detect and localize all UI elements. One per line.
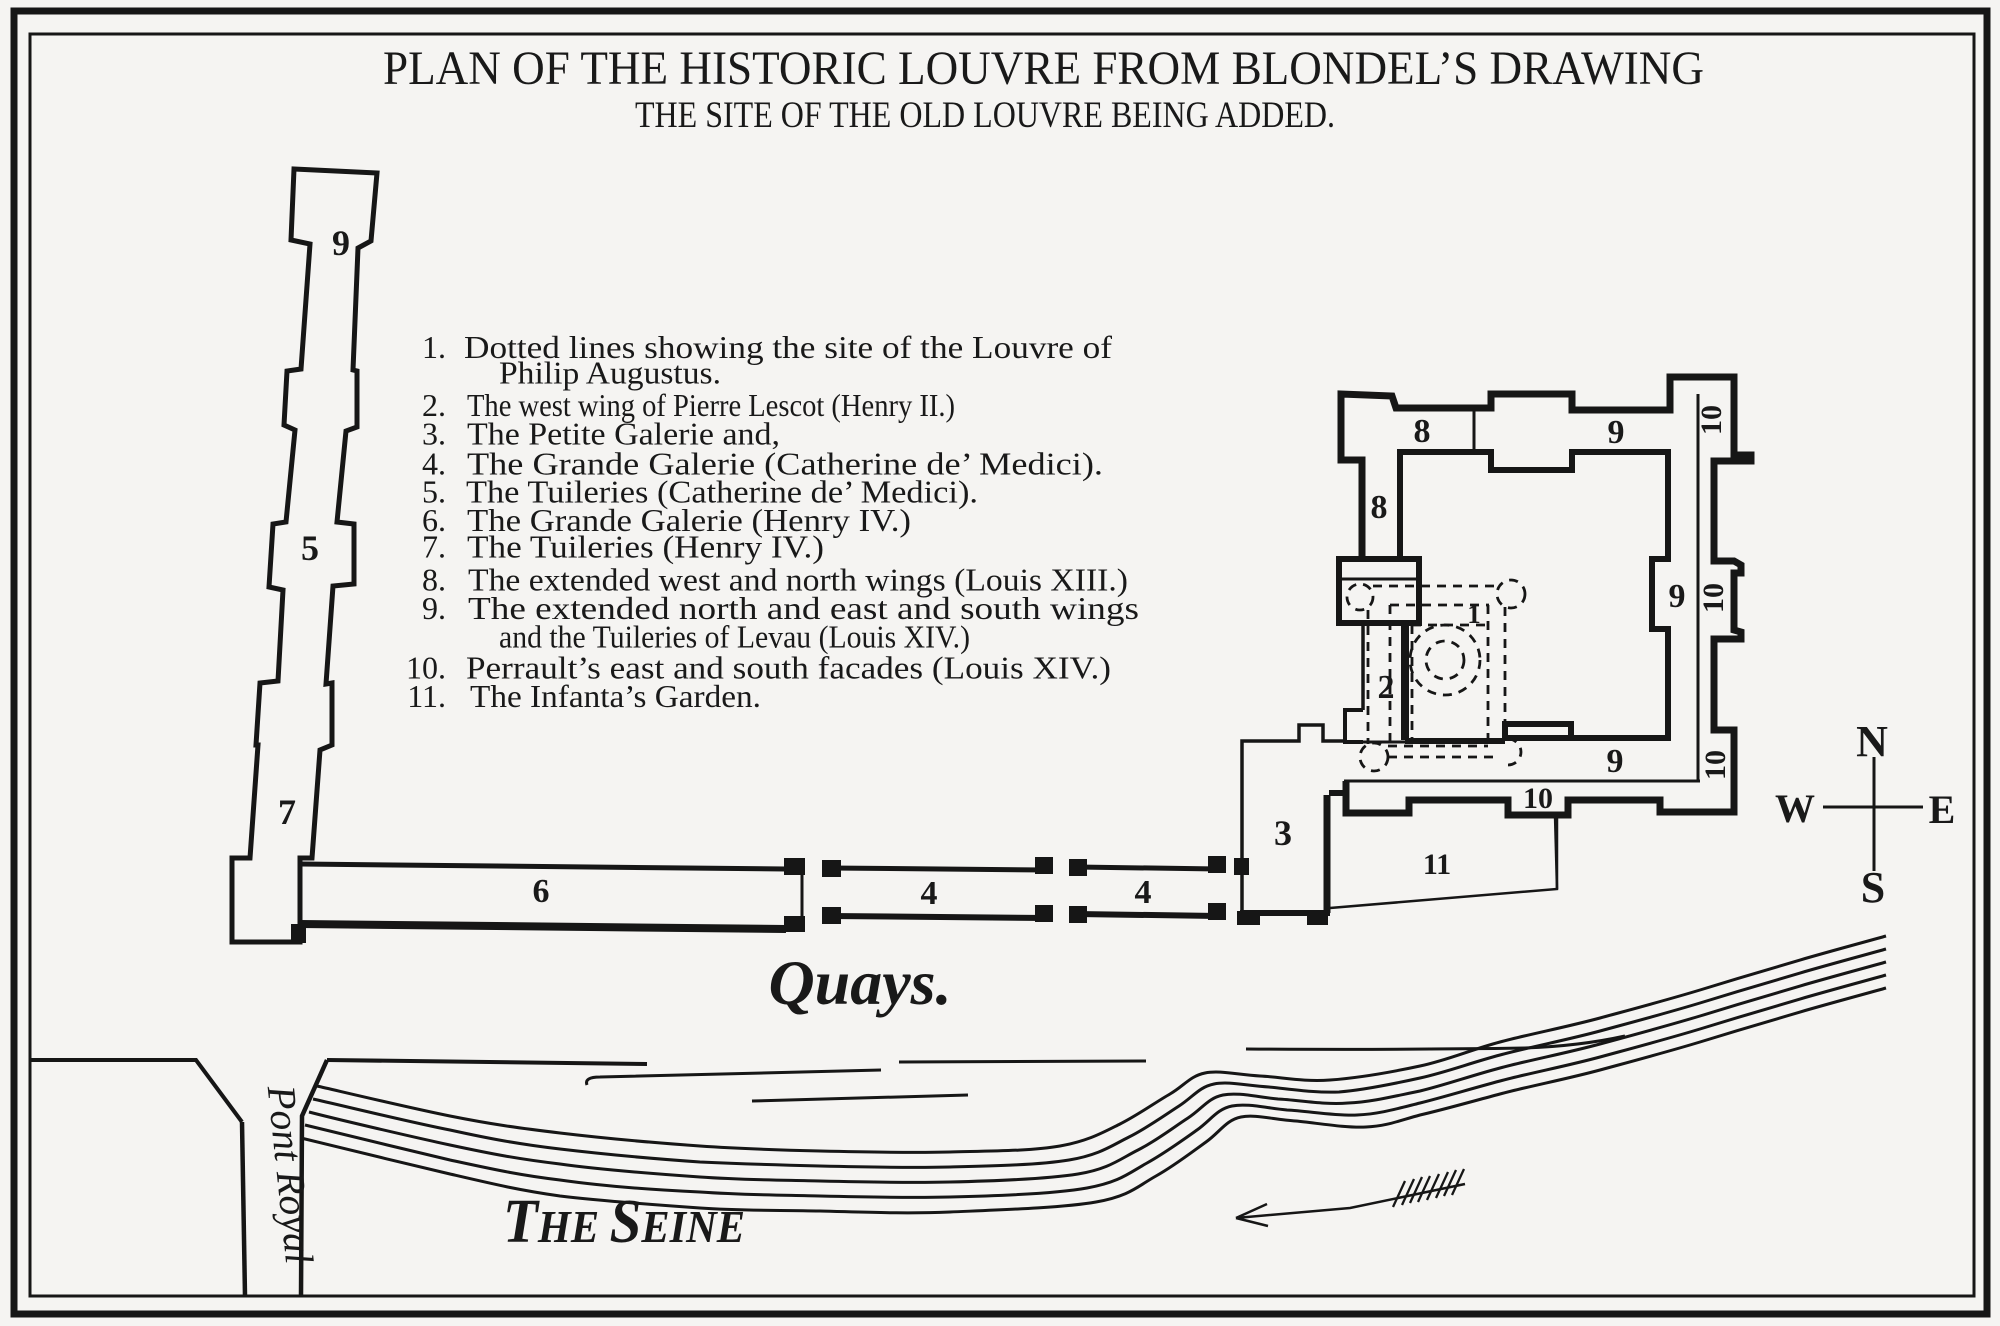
svg-text:7.: 7. (422, 529, 446, 565)
svg-text:N: N (1856, 717, 1888, 766)
svg-text:11.: 11. (407, 678, 446, 714)
svg-text:Philip Augustus.: Philip Augustus. (499, 355, 721, 391)
svg-text:1.: 1. (422, 329, 446, 365)
svg-text:9: 9 (1607, 743, 1624, 780)
svg-text:7: 7 (278, 792, 296, 832)
svg-text:4: 4 (1135, 874, 1152, 911)
svg-text:The Tuileries (Henry IV.): The Tuileries (Henry IV.) (467, 529, 824, 565)
svg-text:Quays.: Quays. (768, 947, 951, 1018)
svg-text:4: 4 (921, 875, 938, 912)
svg-text:10: 10 (1699, 750, 1732, 780)
svg-text:10: 10 (1697, 583, 1730, 613)
svg-text:11: 11 (1423, 848, 1451, 881)
svg-text:8: 8 (1414, 413, 1431, 450)
svg-text:The Infanta’s Garden.: The Infanta’s Garden. (470, 678, 761, 714)
svg-text:E: E (1929, 787, 1956, 832)
svg-text:THE SITE OF THE OLD LOUVRE BEI: THE SITE OF THE OLD LOUVRE BEING ADDED. (635, 95, 1335, 136)
svg-text:9.: 9. (422, 590, 446, 626)
svg-text:9: 9 (332, 223, 350, 263)
svg-text:10: 10 (1523, 782, 1553, 815)
svg-text:10: 10 (1695, 405, 1728, 435)
svg-text:8: 8 (1371, 489, 1388, 526)
svg-text:PLAN OF THE HISTORIC LOUVRE FR: PLAN OF THE HISTORIC LOUVRE FROM BLONDEL… (383, 42, 1704, 95)
svg-text:2: 2 (1378, 669, 1395, 706)
svg-text:3: 3 (1274, 813, 1292, 853)
svg-text:9: 9 (1669, 578, 1686, 615)
svg-text:9: 9 (1608, 414, 1625, 451)
svg-text:6: 6 (533, 873, 550, 910)
svg-text:5: 5 (301, 528, 319, 568)
svg-text:S: S (1861, 863, 1885, 912)
svg-text:W: W (1775, 786, 1815, 831)
